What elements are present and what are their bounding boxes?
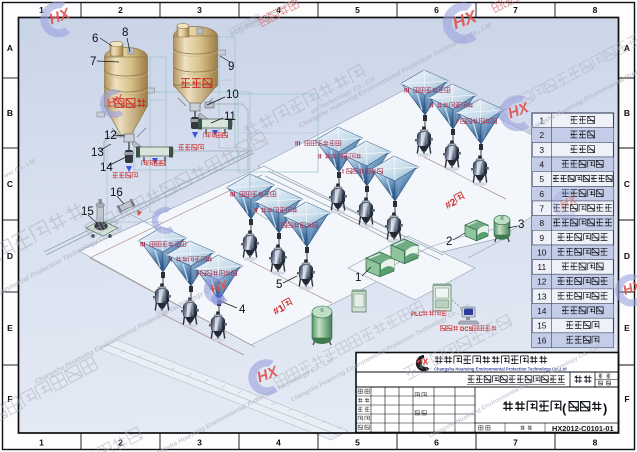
svg-text:15: 15: [537, 321, 547, 331]
svg-text:16: 16: [110, 187, 123, 199]
svg-text:III: III: [230, 192, 236, 199]
svg-text:D: D: [7, 251, 13, 261]
svg-text:5: 5: [539, 174, 544, 184]
svg-text:E: E: [7, 323, 13, 333]
svg-text:): ): [603, 401, 607, 416]
svg-text:1: 1: [39, 438, 44, 448]
svg-text:4: 4: [539, 160, 544, 170]
svg-text:B: B: [7, 108, 13, 118]
svg-text:4: 4: [276, 438, 281, 448]
svg-text:D: D: [624, 251, 630, 261]
svg-text:2: 2: [118, 5, 123, 15]
svg-text:(: (: [562, 401, 567, 416]
svg-text:E: E: [624, 323, 630, 333]
svg-text:2: 2: [446, 236, 452, 248]
svg-text:II: II: [430, 103, 434, 110]
svg-text:6: 6: [434, 5, 439, 15]
svg-text:A: A: [7, 43, 13, 53]
svg-text:HX2012-C0101-01: HX2012-C0101-01: [552, 424, 614, 433]
svg-text:I: I: [342, 169, 344, 176]
svg-text:16: 16: [537, 335, 547, 345]
svg-text:DCS: DCS: [460, 327, 473, 333]
svg-text:13: 13: [537, 291, 547, 301]
svg-text:10: 10: [537, 247, 547, 257]
svg-text:III: III: [140, 242, 146, 249]
svg-text:III: III: [404, 88, 410, 95]
svg-text:3: 3: [518, 219, 524, 231]
svg-text:3: 3: [197, 5, 202, 15]
svg-text:III: III: [295, 141, 301, 148]
svg-text:12: 12: [104, 130, 117, 142]
svg-text:14: 14: [100, 162, 113, 174]
svg-text:1: 1: [355, 272, 361, 284]
svg-text:8: 8: [122, 27, 128, 39]
svg-text:10: 10: [226, 89, 239, 101]
svg-text:6: 6: [539, 189, 544, 199]
svg-text:II: II: [169, 257, 173, 264]
svg-text:6: 6: [434, 438, 439, 448]
svg-text:14: 14: [537, 306, 547, 316]
svg-text:13: 13: [91, 147, 104, 159]
svg-text:8: 8: [593, 5, 598, 15]
svg-text:5: 5: [276, 279, 282, 291]
svg-text:9: 9: [228, 61, 234, 73]
svg-text:5: 5: [355, 438, 360, 448]
svg-text:11: 11: [224, 111, 236, 123]
svg-text:9: 9: [539, 233, 544, 243]
svg-text:3: 3: [197, 438, 202, 448]
svg-text:7: 7: [513, 5, 518, 15]
svg-text:C: C: [7, 179, 13, 189]
svg-text:11: 11: [537, 262, 546, 272]
svg-text:II: II: [318, 154, 322, 161]
svg-text:3: 3: [539, 145, 544, 155]
svg-text:F: F: [624, 394, 629, 404]
svg-text:I: I: [277, 223, 279, 230]
svg-text:B: B: [624, 108, 630, 118]
svg-text:5: 5: [355, 5, 360, 15]
svg-text:I: I: [456, 119, 458, 126]
svg-text:4: 4: [239, 304, 246, 316]
svg-text:7: 7: [539, 204, 544, 214]
svg-text:12: 12: [537, 277, 547, 287]
svg-text:6: 6: [92, 33, 98, 45]
svg-text:8: 8: [593, 438, 598, 448]
svg-text:7: 7: [90, 56, 96, 68]
svg-text:7: 7: [513, 438, 518, 448]
svg-text:I: I: [196, 271, 198, 278]
svg-text:8: 8: [539, 218, 544, 228]
svg-text:2: 2: [539, 130, 544, 140]
svg-text:C: C: [624, 179, 630, 189]
